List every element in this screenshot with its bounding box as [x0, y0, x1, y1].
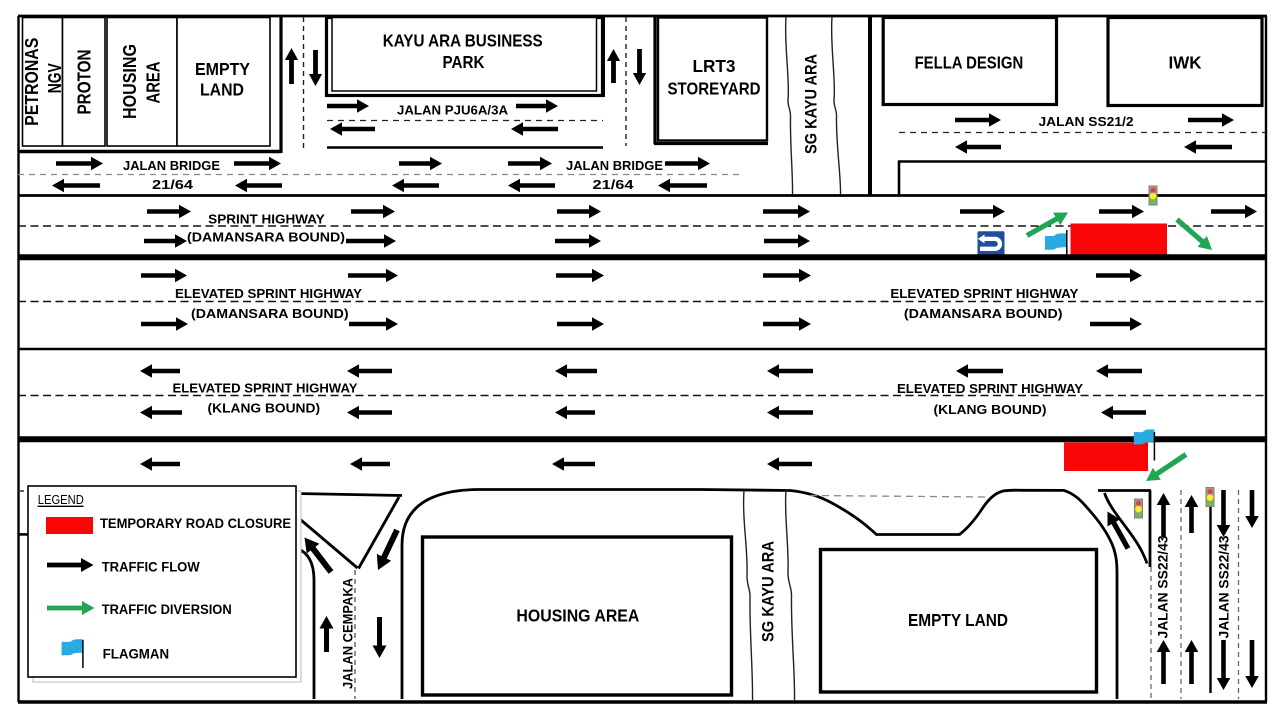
- svg-text:STOREYARD: STOREYARD: [668, 79, 761, 99]
- svg-text:(DAMANSARA BOUND): (DAMANSARA BOUND): [904, 307, 1063, 321]
- svg-text:TEMPORARY ROAD CLOSURE: TEMPORARY ROAD CLOSURE: [100, 516, 291, 532]
- svg-text:ELEVATED SPRINT HIGHWAY: ELEVATED SPRINT HIGHWAY: [890, 287, 1079, 301]
- svg-text:21/64: 21/64: [152, 178, 193, 192]
- svg-text:JALAN SS22/43: JALAN SS22/43: [1216, 535, 1232, 638]
- svg-text:IWK: IWK: [1169, 53, 1202, 73]
- svg-text:ELEVATED SPRINT HIGHWAY: ELEVATED SPRINT HIGHWAY: [173, 382, 359, 396]
- svg-text:PETRONAS: PETRONAS: [21, 38, 42, 126]
- svg-text:JALAN BRIDGE: JALAN BRIDGE: [566, 159, 663, 173]
- svg-text:(KLANG BOUND): (KLANG BOUND): [208, 402, 321, 416]
- svg-text:PROTON: PROTON: [74, 50, 95, 115]
- svg-text:ELEVATED SPRINT HIGHWAY: ELEVATED SPRINT HIGHWAY: [897, 382, 1084, 396]
- svg-text:21/64: 21/64: [593, 178, 634, 192]
- svg-text:HOUSING AREA: HOUSING AREA: [516, 606, 639, 626]
- svg-text:AREA: AREA: [143, 62, 164, 104]
- svg-text:SG KAYU ARA: SG KAYU ARA: [759, 541, 778, 642]
- svg-text:(KLANG BOUND): (KLANG BOUND): [934, 403, 1047, 417]
- svg-text:SPRINT HIGHWAY: SPRINT HIGHWAY: [208, 212, 325, 226]
- svg-text:EMPTY: EMPTY: [195, 59, 250, 79]
- svg-text:(DAMANSARA BOUND): (DAMANSARA BOUND): [191, 307, 349, 321]
- svg-text:HOUSING: HOUSING: [119, 44, 140, 119]
- svg-text:JALAN PJU6A/3A: JALAN PJU6A/3A: [397, 104, 508, 118]
- svg-text:LRT3: LRT3: [693, 56, 736, 76]
- svg-text:LEGEND: LEGEND: [38, 493, 84, 507]
- svg-text:(DAMANSARA BOUND): (DAMANSARA BOUND): [187, 230, 345, 244]
- svg-text:LAND: LAND: [200, 80, 244, 100]
- svg-text:FLAGMAN: FLAGMAN: [103, 647, 170, 663]
- svg-text:JALAN SS21/2: JALAN SS21/2: [1039, 115, 1134, 129]
- svg-text:SG KAYU ARA: SG KAYU ARA: [802, 54, 821, 154]
- svg-text:JALAN BRIDGE: JALAN BRIDGE: [123, 159, 220, 173]
- svg-text:JALAN CEMPAKA: JALAN CEMPAKA: [340, 578, 356, 689]
- svg-text:TRAFFIC DIVERSION: TRAFFIC DIVERSION: [102, 602, 232, 618]
- svg-text:TRAFFIC FLOW: TRAFFIC FLOW: [102, 560, 201, 576]
- svg-text:ELEVATED SPRINT HIGHWAY: ELEVATED SPRINT HIGHWAY: [175, 287, 363, 301]
- svg-text:KAYU ARA BUSINESS: KAYU ARA BUSINESS: [383, 31, 543, 51]
- svg-text:EMPTY LAND: EMPTY LAND: [908, 610, 1008, 630]
- svg-text:FELLA DESIGN: FELLA DESIGN: [915, 53, 1024, 73]
- svg-text:JALAN SS22/43: JALAN SS22/43: [1155, 535, 1171, 638]
- svg-text:PARK: PARK: [443, 52, 485, 72]
